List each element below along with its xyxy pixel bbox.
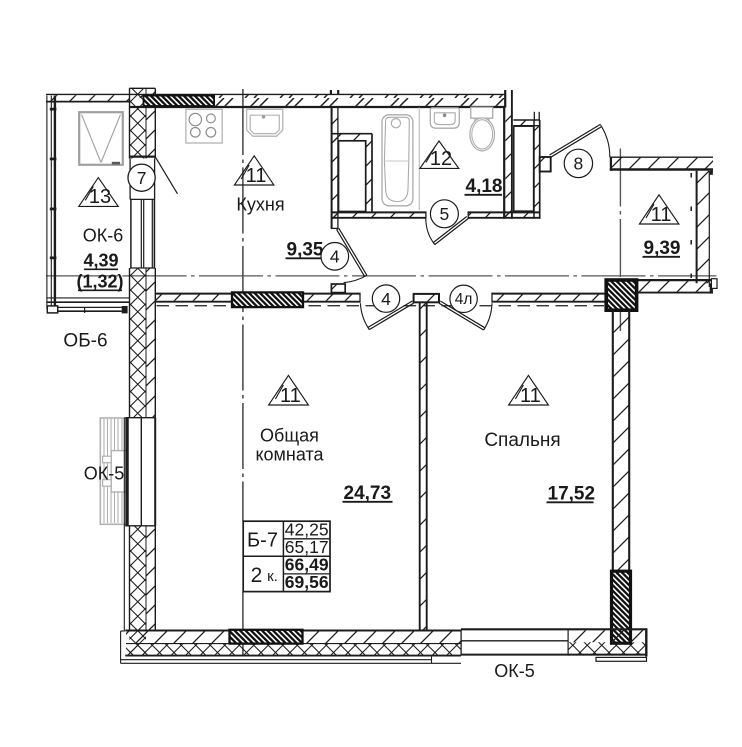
svg-text:(1,32): (1,32) bbox=[76, 272, 123, 292]
svg-text:11: 11 bbox=[246, 165, 267, 187]
svg-text:Спальня: Спальня bbox=[484, 430, 560, 451]
svg-text:2: 2 bbox=[251, 564, 263, 587]
svg-text:13: 13 bbox=[89, 186, 111, 208]
svg-text:11: 11 bbox=[651, 204, 672, 226]
svg-text:8: 8 bbox=[574, 154, 584, 174]
svg-text:Б-7: Б-7 bbox=[247, 530, 278, 552]
svg-text:24,73: 24,73 bbox=[344, 483, 392, 504]
svg-text:Кухня: Кухня bbox=[236, 195, 284, 215]
svg-text:ОК-6: ОК-6 bbox=[83, 226, 124, 246]
svg-text:Общая: Общая bbox=[260, 426, 319, 446]
svg-text:12: 12 bbox=[430, 148, 452, 170]
svg-text:69,56: 69,56 bbox=[285, 572, 329, 592]
svg-text:ОБ-6: ОБ-6 bbox=[63, 331, 107, 352]
svg-text:9,39: 9,39 bbox=[644, 238, 681, 259]
svg-text:11: 11 bbox=[280, 385, 301, 407]
svg-text:4: 4 bbox=[381, 289, 391, 309]
svg-text:4,18: 4,18 bbox=[466, 176, 503, 197]
svg-text:4л: 4л bbox=[455, 291, 473, 308]
svg-text:комната: комната bbox=[255, 445, 324, 465]
svg-text:9,35: 9,35 bbox=[287, 240, 324, 261]
svg-text:5: 5 bbox=[440, 204, 450, 224]
svg-text:17,52: 17,52 bbox=[548, 484, 596, 505]
svg-text:к.: к. bbox=[267, 568, 278, 585]
svg-text:4: 4 bbox=[330, 247, 340, 267]
svg-text:ОК-5: ОК-5 bbox=[84, 464, 125, 484]
svg-text:4,39: 4,39 bbox=[83, 251, 118, 271]
svg-text:ОК-5: ОК-5 bbox=[494, 661, 535, 681]
svg-text:11: 11 bbox=[520, 385, 541, 407]
svg-text:7: 7 bbox=[137, 168, 147, 188]
